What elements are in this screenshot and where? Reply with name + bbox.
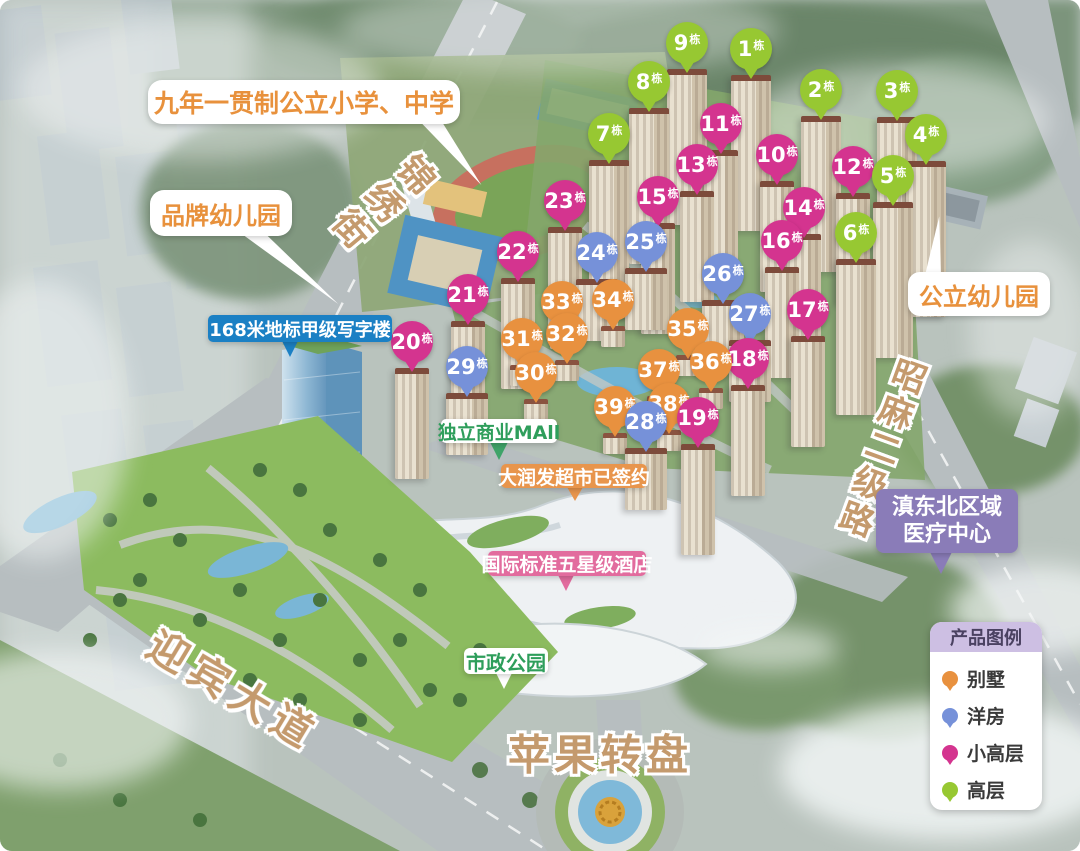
building-marker-suffix: 栋 — [787, 146, 798, 157]
legend-pin-icon — [942, 671, 958, 687]
building-marker-suffix: 栋 — [668, 188, 679, 199]
callout-public-kindergarten: 公立幼儿园 — [908, 272, 1050, 316]
building-marker-number: 20 — [391, 332, 420, 353]
callout-medical-line2: 医疗中心 — [903, 521, 991, 549]
building-marker-number: 29 — [446, 357, 475, 378]
callout-medical-center-pointer — [930, 552, 952, 574]
building-marker-suffix: 栋 — [721, 353, 732, 364]
building-marker-number: 37 — [638, 360, 667, 381]
callout-brand-kindergarten: 品牌幼儿园 — [150, 190, 292, 236]
building-marker-number: 16 — [761, 231, 790, 252]
legend-pin-icon — [942, 782, 958, 798]
legend-pin-icon — [942, 708, 958, 724]
building-marker-suffix: 栋 — [858, 224, 869, 235]
building-marker-suffix: 栋 — [611, 125, 622, 136]
building-marker-suffix: 栋 — [528, 243, 539, 254]
legend-title: 产品图例 — [930, 622, 1042, 652]
building-marker-29: 29栋 — [446, 346, 488, 388]
callout-school: 九年一贯制公立小学、中学 — [148, 80, 460, 124]
building-marker-10: 10栋 — [756, 134, 798, 176]
building-marker-1: 1栋 — [730, 28, 772, 70]
building-marker-number: 28 — [625, 412, 654, 433]
building-tower-6 — [836, 259, 876, 415]
callout-supermarket: 大润发超市已签约 — [501, 464, 647, 488]
building-marker-number: 5 — [880, 166, 895, 187]
building-tower-18 — [731, 385, 765, 496]
building-marker-25: 25栋 — [625, 221, 667, 263]
building-marker-number: 35 — [667, 319, 696, 340]
legend-rows: 别墅洋房小高层高层 — [930, 652, 1042, 808]
building-marker-22: 22栋 — [497, 231, 539, 273]
building-marker-suffix: 栋 — [572, 293, 583, 304]
legend-item-gaoceng: 高层 — [942, 771, 1032, 808]
building-marker-number: 1 — [738, 39, 753, 60]
building-marker-number: 30 — [515, 363, 544, 384]
building-marker-suffix: 栋 — [823, 81, 834, 92]
building-marker-17: 17栋 — [787, 289, 829, 331]
building-marker-suffix: 栋 — [651, 73, 662, 84]
building-marker-suffix: 栋 — [689, 34, 700, 45]
building-marker-number: 2 — [808, 80, 823, 101]
building-marker-number: 4 — [913, 125, 928, 146]
building-marker-number: 24 — [576, 243, 605, 264]
building-marker-number: 14 — [783, 198, 812, 219]
callout-civic-park: 市政公园 — [464, 648, 548, 674]
building-marker-number: 10 — [756, 145, 785, 166]
building-marker-suffix: 栋 — [575, 192, 586, 203]
building-marker-9: 9栋 — [666, 22, 708, 64]
building-marker-number: 7 — [596, 124, 611, 145]
building-marker-30: 30栋 — [515, 352, 557, 394]
building-marker-suffix: 栋 — [863, 158, 874, 169]
building-marker-36: 36栋 — [690, 341, 732, 383]
building-marker-3: 3栋 — [876, 70, 918, 112]
product-legend: 产品图例 别墅洋房小高层高层 — [930, 622, 1042, 810]
road-label-apple-roundabout: 苹果转盘 — [508, 722, 692, 783]
building-marker-suffix: 栋 — [577, 325, 588, 336]
building-marker-suffix: 栋 — [532, 330, 543, 341]
building-marker-suffix: 栋 — [669, 361, 680, 372]
building-marker-suffix: 栋 — [698, 320, 709, 331]
building-marker-8: 8栋 — [628, 61, 670, 103]
building-marker-20: 20栋 — [391, 321, 433, 363]
building-marker-suffix: 栋 — [478, 286, 489, 297]
legend-item-yangfang: 洋房 — [942, 697, 1032, 734]
building-marker-suffix: 栋 — [753, 40, 764, 51]
building-marker-number: 3 — [884, 81, 899, 102]
building-marker-suffix: 栋 — [818, 301, 829, 312]
building-marker-number: 32 — [546, 324, 575, 345]
building-marker-11: 11栋 — [700, 103, 742, 145]
building-marker-34: 34栋 — [592, 279, 634, 321]
building-marker-number: 19 — [677, 408, 706, 429]
building-marker-suffix: 栋 — [760, 305, 771, 316]
building-marker-4: 4栋 — [905, 114, 947, 156]
building-marker-number: 31 — [501, 329, 530, 350]
building-tower-19 — [681, 444, 715, 555]
building-marker-18: 18栋 — [727, 338, 769, 380]
building-marker-number: 23 — [544, 191, 573, 212]
building-marker-suffix: 栋 — [607, 244, 618, 255]
building-marker-suffix: 栋 — [708, 409, 719, 420]
building-marker-suffix: 栋 — [899, 82, 910, 93]
aerial-masterplan: 9栋1栋8栋2栋3栋11栋7栋4栋10栋13栋12栋5栋15栋23栋14栋6栋1… — [0, 0, 1080, 851]
building-marker-21: 21栋 — [447, 274, 489, 316]
legend-item-label: 洋房 — [967, 702, 1005, 729]
building-marker-suffix: 栋 — [623, 291, 634, 302]
building-marker-15: 15栋 — [637, 176, 679, 218]
building-marker-number: 26 — [702, 264, 731, 285]
building-tower-5 — [873, 202, 913, 358]
building-marker-suffix: 栋 — [477, 358, 488, 369]
building-marker-13: 13栋 — [676, 144, 718, 186]
callout-office-tower-pointer — [282, 341, 298, 357]
building-marker-number: 22 — [497, 242, 526, 263]
building-marker-number: 9 — [674, 33, 689, 54]
callout-hotel-pointer — [558, 575, 574, 591]
building-marker-27: 27栋 — [729, 293, 771, 335]
building-marker-2: 2栋 — [800, 69, 842, 111]
building-marker-number: 17 — [787, 300, 816, 321]
building-marker-number: 6 — [843, 223, 858, 244]
legend-pin-icon — [942, 745, 958, 761]
building-marker-24: 24栋 — [576, 232, 618, 274]
building-marker-6: 6栋 — [835, 212, 877, 254]
building-marker-number: 25 — [625, 232, 654, 253]
building-marker-suffix: 栋 — [731, 115, 742, 126]
building-marker-12: 12栋 — [832, 146, 874, 188]
building-marker-number: 13 — [676, 155, 705, 176]
building-marker-32: 32栋 — [546, 313, 588, 355]
callout-office-tower: 168米地标甲级写字楼 — [208, 315, 392, 342]
building-marker-19: 19栋 — [677, 397, 719, 439]
callout-mall: 独立商业MAll — [441, 419, 557, 443]
building-marker-number: 11 — [700, 114, 729, 135]
callout-medical-center: 滇东北区域 医疗中心 — [876, 489, 1018, 553]
building-marker-suffix: 栋 — [546, 364, 557, 375]
building-marker-suffix: 栋 — [656, 413, 667, 424]
legend-item-bieshu: 别墅 — [942, 660, 1032, 697]
building-marker-suffix: 栋 — [707, 156, 718, 167]
building-marker-28: 28栋 — [625, 401, 667, 443]
building-tower-20 — [395, 368, 429, 479]
building-marker-number: 15 — [637, 187, 666, 208]
building-marker-16: 16栋 — [761, 220, 803, 262]
building-marker-number: 21 — [447, 285, 476, 306]
building-marker-number: 27 — [729, 304, 758, 325]
building-marker-suffix: 栋 — [895, 167, 906, 178]
building-marker-suffix: 栋 — [422, 333, 433, 344]
legend-item-xiaogaoceng: 小高层 — [942, 734, 1032, 771]
legend-item-label: 高层 — [967, 776, 1005, 803]
callout-mall-pointer — [490, 442, 508, 460]
building-marker-number: 36 — [690, 352, 719, 373]
callout-medical-line1: 滇东北区域 — [892, 494, 1002, 522]
building-tower-17 — [791, 336, 825, 447]
building-marker-number: 34 — [592, 290, 621, 311]
building-marker-suffix: 栋 — [656, 233, 667, 244]
building-marker-suffix: 栋 — [928, 126, 939, 137]
building-marker-number: 12 — [832, 157, 861, 178]
callout-hotel: 国际标准五星级酒店 — [488, 551, 646, 576]
building-marker-26: 26栋 — [702, 253, 744, 295]
building-marker-7: 7栋 — [588, 113, 630, 155]
building-marker-number: 8 — [636, 72, 651, 93]
building-marker-suffix: 栋 — [792, 232, 803, 243]
building-marker-5: 5栋 — [872, 155, 914, 197]
building-marker-suffix: 栋 — [814, 199, 825, 210]
building-marker-suffix: 栋 — [758, 350, 769, 361]
legend-item-label: 小高层 — [967, 739, 1024, 766]
building-marker-number: 39 — [594, 397, 623, 418]
building-marker-suffix: 栋 — [733, 265, 744, 276]
building-marker-23: 23栋 — [544, 180, 586, 222]
legend-item-label: 别墅 — [967, 665, 1005, 692]
building-marker-number: 33 — [541, 292, 570, 313]
